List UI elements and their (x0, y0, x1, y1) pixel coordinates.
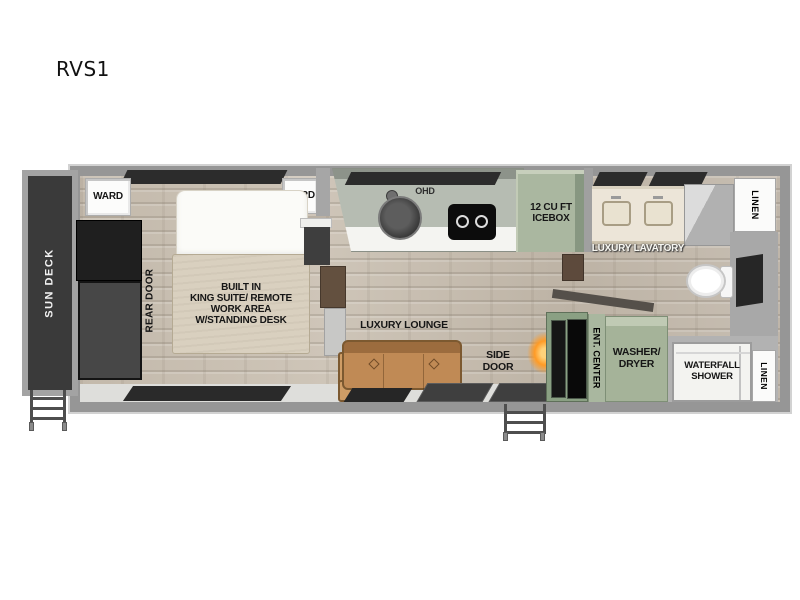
washer-dryer-label: WASHER/ DRYER (613, 347, 661, 371)
bedroom-slide-upper (76, 220, 142, 281)
cooktop (448, 204, 496, 240)
ent-center-front (546, 312, 588, 402)
window-kitchen (345, 172, 501, 185)
shower-label: WATERFALL SHOWER (684, 361, 740, 382)
bedroom-kitchen-wall (316, 168, 330, 216)
tv-screen-icon (551, 320, 566, 398)
bed-pillows (176, 190, 308, 258)
entry-mat (417, 383, 494, 402)
lavatory-sink-right (644, 201, 673, 226)
fireplace-insert-icon (567, 319, 587, 399)
sofa-tuft-icon (428, 358, 439, 369)
sofa-seam (423, 354, 424, 390)
bed-label: BUILT IN KING SUITE/ REMOTE WORK AREA W/… (190, 282, 292, 327)
burner-icon (475, 215, 488, 228)
wardrobe-left-label: WARD (93, 191, 123, 202)
side-door-label: SIDE DOOR (468, 350, 528, 374)
bedroom-slide-lower (78, 281, 142, 380)
linen-top-label: LINEN (734, 178, 776, 232)
sun-deck-label: SUN DECK (22, 170, 78, 396)
ent-center-label: ENT. CENTER (588, 314, 605, 402)
tap-icon (653, 196, 663, 199)
lavatory-closet (684, 184, 734, 246)
step-foot (540, 432, 545, 441)
shower-glass (676, 352, 750, 354)
washer-dryer: WASHER/ DRYER (605, 316, 668, 402)
wardrobe-left: WARD (85, 178, 131, 216)
waterfall-shower: WATERFALL SHOWER (672, 342, 752, 402)
lounge-label: LUXURY LOUNGE (358, 320, 450, 332)
linen-bottom-label: LINEN (752, 350, 776, 402)
floorplan-title: RVS1 (56, 57, 110, 81)
window-lavatory-1 (592, 172, 647, 187)
step-foot (503, 432, 508, 441)
sofa-seam (383, 354, 384, 390)
king-bed: BUILT IN KING SUITE/ REMOTE WORK AREA W/… (172, 254, 310, 354)
burner-icon (456, 215, 469, 228)
kitchen-sink (378, 196, 422, 240)
sofa-tuft-icon (368, 358, 379, 369)
icebox-label: 12 CU FT ICEBOX (530, 202, 572, 224)
lavatory-label: LUXURY LAVATORY (588, 243, 688, 254)
lavatory-sink-left (602, 201, 631, 226)
nightstand (304, 227, 330, 265)
entry-mat (344, 388, 413, 402)
bedroom-cabinet (320, 266, 346, 308)
sun-deck-ladder (30, 390, 66, 424)
toilet (686, 264, 726, 298)
bedroom-mat (123, 386, 291, 401)
entry-steps (504, 404, 546, 434)
pantry-cabinet (562, 254, 584, 281)
ladder-foot (29, 422, 34, 431)
bath-tv-panel (736, 254, 763, 307)
window-bedroom (121, 170, 288, 184)
rear-door-label: REAR DOOR (138, 262, 162, 340)
tap-icon (611, 196, 621, 199)
icebox: 12 CU FT ICEBOX (516, 170, 584, 252)
overhead-cabinet-label: OHD (402, 186, 448, 196)
ladder-foot (62, 422, 67, 431)
